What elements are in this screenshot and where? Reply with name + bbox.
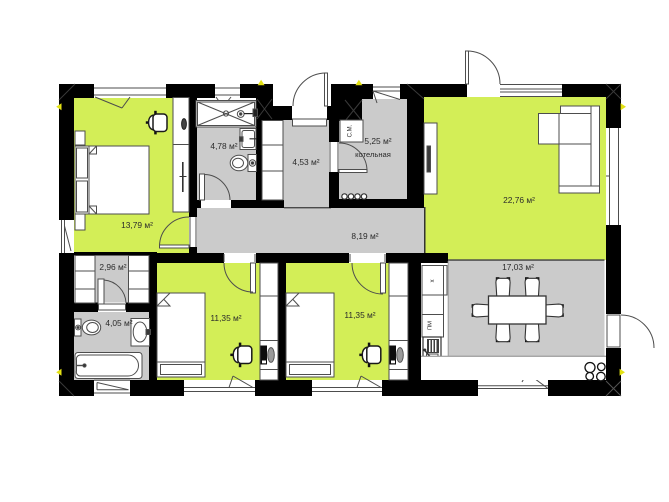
- svg-text:4,78 м²: 4,78 м²: [210, 141, 237, 151]
- svg-text:5,25 м²: 5,25 м²: [364, 136, 391, 146]
- svg-text:котельная: котельная: [355, 150, 391, 159]
- svg-text:22,76 м²: 22,76 м²: [503, 195, 535, 205]
- svg-text:4,53 м²: 4,53 м²: [292, 157, 319, 167]
- svg-text:13,79 м²: 13,79 м²: [121, 220, 153, 230]
- svg-text:4,05 м²: 4,05 м²: [105, 318, 132, 328]
- svg-text:С.М.: С.М.: [348, 124, 354, 137]
- svg-text:11,35 м²: 11,35 м²: [210, 313, 241, 323]
- svg-text:11,35 м²: 11,35 м²: [344, 310, 375, 320]
- svg-text:ПМ: ПМ: [428, 321, 434, 330]
- svg-text:2,96 м²: 2,96 м²: [99, 262, 126, 272]
- svg-text:17,03 м²: 17,03 м²: [502, 262, 534, 272]
- svg-text:8,19 м²: 8,19 м²: [351, 231, 378, 241]
